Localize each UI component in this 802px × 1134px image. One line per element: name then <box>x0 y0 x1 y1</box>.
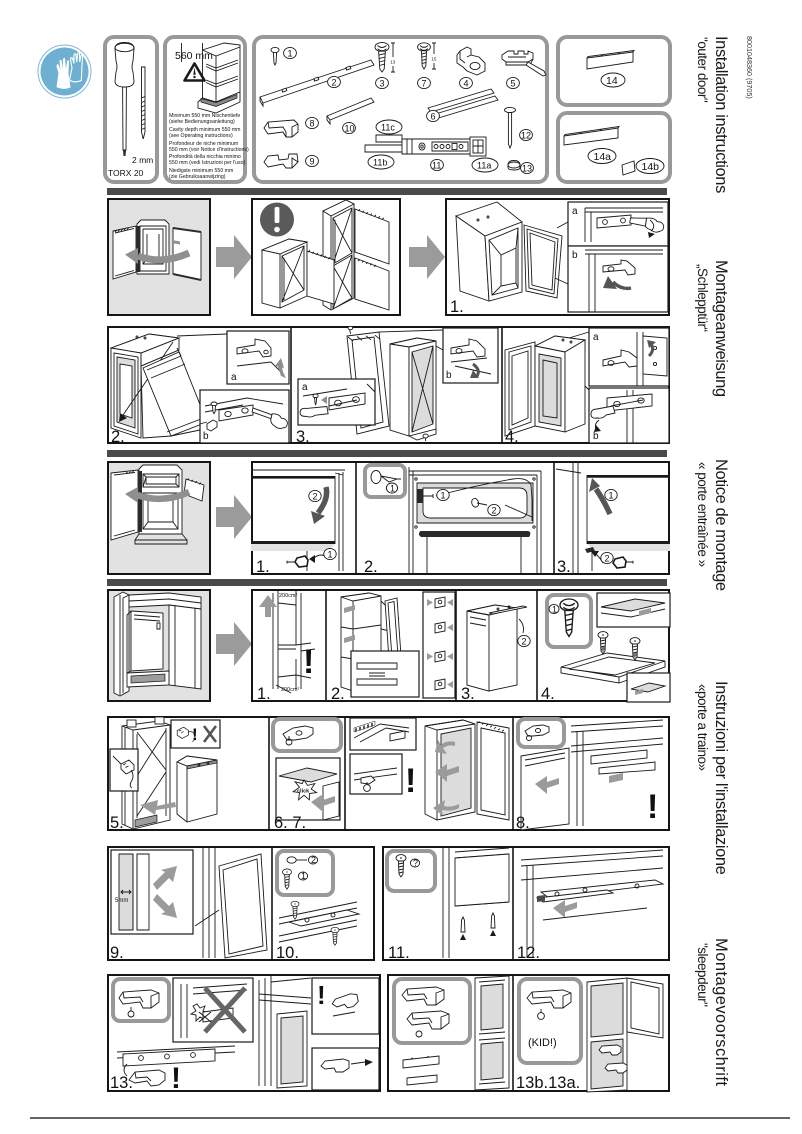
svg-text:11: 11 <box>432 161 441 171</box>
svg-text:560 mm: 560 mm <box>175 50 213 62</box>
svg-text:1: 1 <box>390 484 395 494</box>
svg-text:2: 2 <box>492 506 497 516</box>
svg-text:2 mm: 2 mm <box>132 155 153 165</box>
svg-text:a: a <box>593 332 599 343</box>
svg-text:2.: 2. <box>364 558 378 576</box>
svg-text:2: 2 <box>605 554 610 564</box>
svg-text:1: 1 <box>441 491 446 501</box>
svg-text:b: b <box>593 431 599 442</box>
svg-text:(see Operating instructions): (see Operating instructions) <box>169 133 233 139</box>
svg-text:8: 8 <box>310 119 315 129</box>
svg-text:a: a <box>302 382 308 393</box>
svg-text:a: a <box>231 372 237 383</box>
svg-text:5mm: 5mm <box>115 898 128 904</box>
svg-text:13: 13 <box>390 60 396 65</box>
svg-text:14: 14 <box>606 75 618 87</box>
svg-text:550 mm (voir Notice d'instruct: 550 mm (voir Notice d'instructions) <box>169 147 249 153</box>
svg-text:13b.13a.: 13b.13a. <box>516 1074 580 1092</box>
svg-text:2: 2 <box>313 492 318 502</box>
svg-text:!: ! <box>647 788 658 826</box>
svg-text:9.: 9. <box>110 944 124 962</box>
svg-text:1: 1 <box>328 550 333 560</box>
svg-text:!: ! <box>405 762 416 800</box>
svg-text:1.: 1. <box>256 558 270 576</box>
svg-text:!: ! <box>303 643 314 681</box>
svg-text:(zie Gebruiksaanwijzing): (zie Gebruiksaanwijzing) <box>169 174 226 180</box>
svg-text:12.: 12. <box>517 944 540 962</box>
svg-text:!: ! <box>317 980 326 1010</box>
svg-text:5: 5 <box>511 79 516 89</box>
svg-text:?: ? <box>413 858 418 868</box>
svg-text:13.: 13. <box>110 1074 133 1092</box>
svg-text:15: 15 <box>431 57 437 62</box>
svg-text:4.: 4. <box>505 428 519 446</box>
svg-text:b: b <box>446 370 452 381</box>
svg-text:14a: 14a <box>594 151 612 163</box>
svg-text:8.: 8. <box>516 814 530 832</box>
svg-text:b: b <box>572 250 578 261</box>
svg-text:!: ! <box>192 725 198 744</box>
svg-text:13: 13 <box>522 164 532 174</box>
svg-text:(siehe Bedienungsanleitung): (siehe Bedienungsanleitung) <box>169 119 235 125</box>
svg-text:6: 6 <box>431 112 436 122</box>
svg-text:!: ! <box>171 1062 181 1095</box>
svg-text:1: 1 <box>609 491 614 501</box>
svg-text:2.: 2. <box>111 428 125 446</box>
svg-text:TORX 20: TORX 20 <box>108 168 144 178</box>
svg-text:3.: 3. <box>461 685 475 703</box>
svg-text:10.: 10. <box>276 944 299 962</box>
svg-text:11c: 11c <box>381 123 395 133</box>
svg-text:7: 7 <box>422 79 427 89</box>
svg-text:3.: 3. <box>296 428 310 446</box>
svg-text:4: 4 <box>464 79 469 89</box>
svg-text:(KID!): (KID!) <box>528 1037 557 1049</box>
svg-text:4.: 4. <box>541 685 555 703</box>
svg-text:5.: 5. <box>110 814 124 832</box>
svg-text:12: 12 <box>521 131 531 141</box>
svg-text:11a: 11a <box>477 161 491 171</box>
svg-text:14b: 14b <box>642 161 660 173</box>
svg-text:2: 2 <box>332 78 337 88</box>
svg-text:1: 1 <box>301 871 306 881</box>
svg-text:6. 7.: 6. 7. <box>274 814 306 832</box>
svg-text:1: 1 <box>552 605 557 615</box>
svg-text:550 mm (vedi Istruzioni per l': 550 mm (vedi Istruzioni per l'uso) <box>169 160 246 166</box>
svg-text:11b: 11b <box>373 158 387 168</box>
svg-text:1: 1 <box>288 49 293 59</box>
svg-text:200cm²: 200cm² <box>279 593 298 599</box>
svg-text:2: 2 <box>311 855 316 865</box>
svg-text:9: 9 <box>310 157 315 167</box>
svg-text:3: 3 <box>380 79 385 89</box>
svg-text:3.: 3. <box>557 558 571 576</box>
svg-text:10: 10 <box>345 124 355 134</box>
svg-text:1.: 1. <box>450 298 464 316</box>
svg-text:11.: 11. <box>388 944 410 962</box>
svg-text:a: a <box>572 206 578 217</box>
svg-text:2: 2 <box>522 637 527 647</box>
svg-text:2.: 2. <box>331 685 345 703</box>
svg-text:click: click <box>297 789 310 795</box>
svg-text:b: b <box>203 431 209 442</box>
svg-text:1.: 1. <box>257 685 271 703</box>
